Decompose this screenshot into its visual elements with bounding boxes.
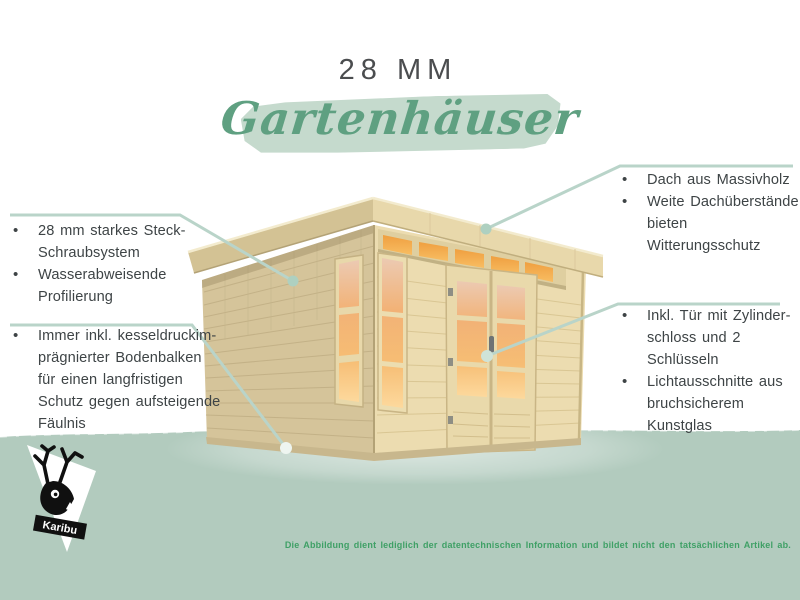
feature-item: • Wasserabweisende Profilierung xyxy=(13,264,208,308)
feature-text: Immer inkl. kesseldruckim- prägnierter B… xyxy=(38,325,220,435)
bullet-icon: • xyxy=(622,169,647,191)
callout-dot xyxy=(288,276,299,287)
karibu-logo: Karibu xyxy=(14,438,124,568)
garden-house-illustration xyxy=(188,198,603,461)
feature-text: 28 mm starkes Steck- Schraubsystem xyxy=(38,220,186,264)
callout-dot xyxy=(481,350,493,362)
feature-text: Inkl. Tür mit Zylinder- schloss und 2 Sc… xyxy=(647,305,800,371)
feature-list-right-top: • Dach aus Massivholz • Weite Dachüberst… xyxy=(622,169,800,257)
feature-text: Wasserabweisende Profilierung xyxy=(38,264,166,308)
feature-item: • 28 mm starkes Steck- Schraubsystem xyxy=(13,220,208,264)
bullet-icon: • xyxy=(622,371,647,393)
bullet-icon: • xyxy=(13,325,38,347)
bullet-icon: • xyxy=(13,220,38,242)
bullet-icon: • xyxy=(13,264,38,286)
feature-text: Weite Dachüberstände bieten Witterungssc… xyxy=(647,191,800,257)
bullet-icon: • xyxy=(622,305,647,327)
feature-list-left-top: • 28 mm starkes Steck- Schraubsystem • W… xyxy=(13,220,208,308)
feature-item: • Immer inkl. kesseldruckim- prägnierter… xyxy=(13,325,223,435)
feature-item: • Inkl. Tür mit Zylinder- schloss und 2 … xyxy=(622,305,800,371)
feature-list-left-bottom: • Immer inkl. kesseldruckim- prägnierter… xyxy=(13,325,223,435)
feature-list-right-bottom: • Inkl. Tür mit Zylinder- schloss und 2 … xyxy=(622,305,800,437)
callout-dot xyxy=(280,442,292,454)
page-title: Gartenhäuser xyxy=(0,92,800,145)
disclaimer-text: Die Abbildung dient lediglich der datent… xyxy=(191,540,791,550)
feature-item: • Weite Dachüberstände bieten Witterungs… xyxy=(622,191,800,257)
door-glass-left xyxy=(457,281,487,397)
front-window xyxy=(378,253,407,413)
feature-item: • Dach aus Massivholz xyxy=(622,169,800,191)
feature-text: Dach aus Massivholz xyxy=(647,169,790,191)
side-window xyxy=(335,255,363,407)
feature-item: • Lichtausschnitte aus bruchsicherem Kun… xyxy=(622,371,800,437)
callout-dot xyxy=(481,224,492,235)
feature-text: Lichtausschnitte aus bruchsicherem Kunst… xyxy=(647,371,800,437)
size-label: 28 MM xyxy=(0,54,796,87)
bullet-icon: • xyxy=(622,191,647,213)
